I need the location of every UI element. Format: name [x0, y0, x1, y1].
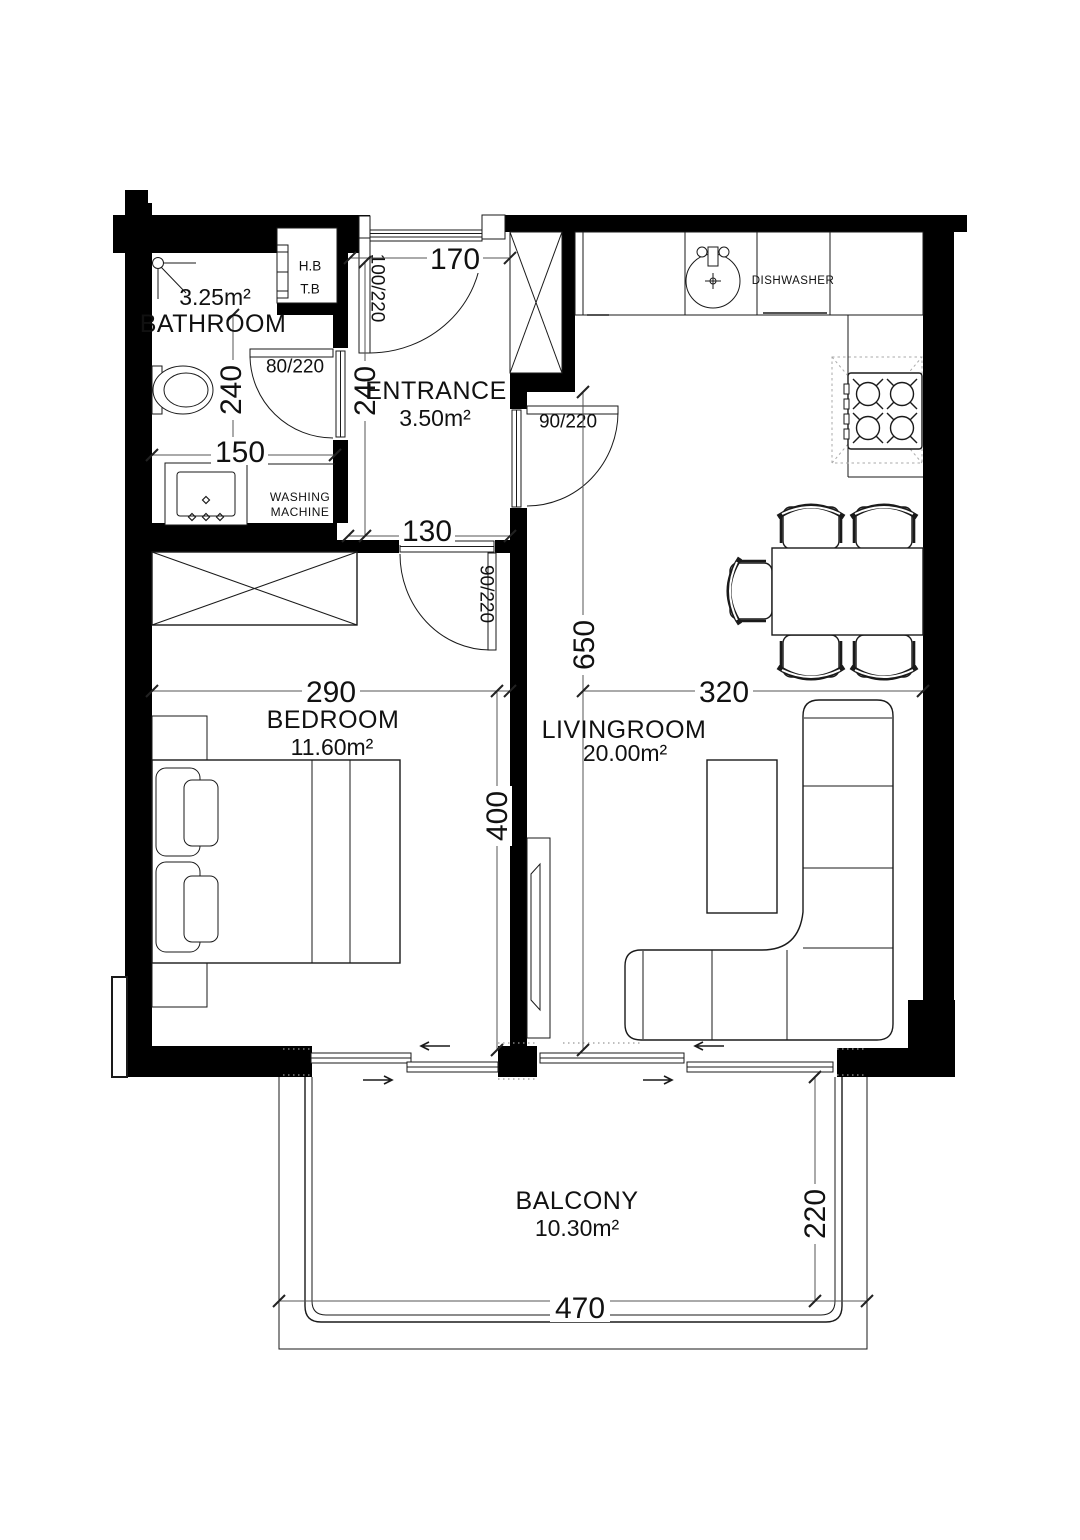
dim-bedroom-depth: 400: [481, 791, 514, 841]
area-label-bedroom: 11.60m²: [291, 734, 374, 760]
door-livingroom: 90/220: [512, 406, 618, 507]
dim-balcony-depth: 220: [799, 1189, 832, 1239]
stove: [832, 357, 922, 463]
room-label-bathroom: BATHROOM: [140, 310, 287, 338]
area-label-entrance: 3.50m²: [399, 405, 471, 431]
dim-livingroom-depth: 650: [568, 620, 601, 670]
floor-plan: H.B T.B DISHWASHER: [0, 0, 1080, 1540]
dining-table: [772, 548, 923, 635]
bed: [152, 760, 400, 963]
dim-entrance-width: 170: [430, 243, 480, 276]
washing-machine-label-line2: MACHINE: [271, 505, 330, 519]
door-label-livingroom: 90/220: [539, 412, 597, 433]
left-pilaster: [112, 977, 127, 1077]
door-label-bathroom: 80/220: [266, 357, 324, 378]
dim-entrance-hall-width: 130: [402, 515, 452, 548]
tv-unit: [527, 838, 550, 1038]
hb-tb-shaft: H.B T.B: [277, 228, 337, 303]
nightstand-bottom: [152, 963, 207, 1007]
door-bedroom: 90/220: [400, 541, 497, 650]
door-bathroom: 80/220: [250, 349, 345, 438]
dim-balcony-width: 470: [555, 1292, 605, 1325]
area-label-bathroom: 3.25m²: [179, 284, 251, 310]
sliding-door-bedroom: [311, 1042, 498, 1084]
area-label-livingroom: 20.00m²: [583, 740, 668, 766]
room-label-entrance: ENTRANCE: [365, 377, 507, 405]
door-label-bedroom: 90/220: [476, 565, 497, 623]
wardrobe: [152, 552, 357, 625]
dim-livingroom-width: 320: [699, 676, 749, 709]
shaft-label-hb: H.B: [299, 259, 322, 274]
kitchen-sink: [686, 247, 740, 308]
nightstand-top: [152, 716, 207, 760]
coffee-table: [707, 760, 777, 913]
dim-bedroom-width: 290: [306, 676, 356, 709]
dim-bathroom-width: 150: [215, 436, 265, 469]
washing-machine: [165, 463, 247, 525]
ventilation-shaft: [510, 232, 562, 373]
room-label-balcony: BALCONY: [516, 1187, 639, 1215]
area-label-balcony: 10.30m²: [535, 1215, 620, 1241]
washing-machine-label-line1: WASHING: [270, 490, 330, 504]
toilet: [152, 366, 213, 414]
shaft-label-tb: T.B: [300, 282, 320, 297]
room-label-bedroom: BEDROOM: [267, 706, 400, 734]
door-label-entrance: 100/220: [367, 254, 388, 323]
dishwasher-label: DISHWASHER: [752, 275, 835, 287]
dim-bathroom-depth: 240: [215, 365, 248, 415]
door-entrance: 100/220: [359, 215, 505, 353]
